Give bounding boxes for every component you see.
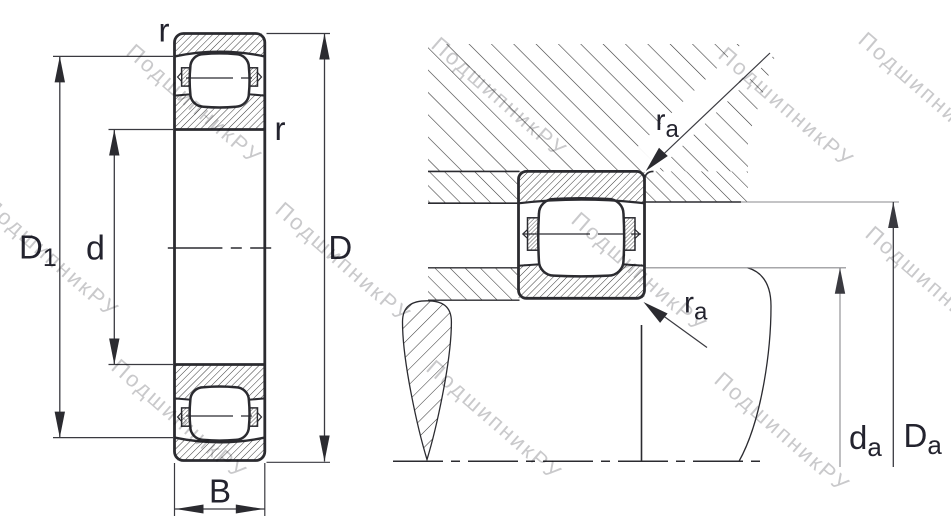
svg-text:r: r <box>275 110 286 147</box>
svg-text:r: r <box>159 12 170 49</box>
svg-text:B: B <box>209 473 231 510</box>
svg-text:d: d <box>86 229 105 267</box>
